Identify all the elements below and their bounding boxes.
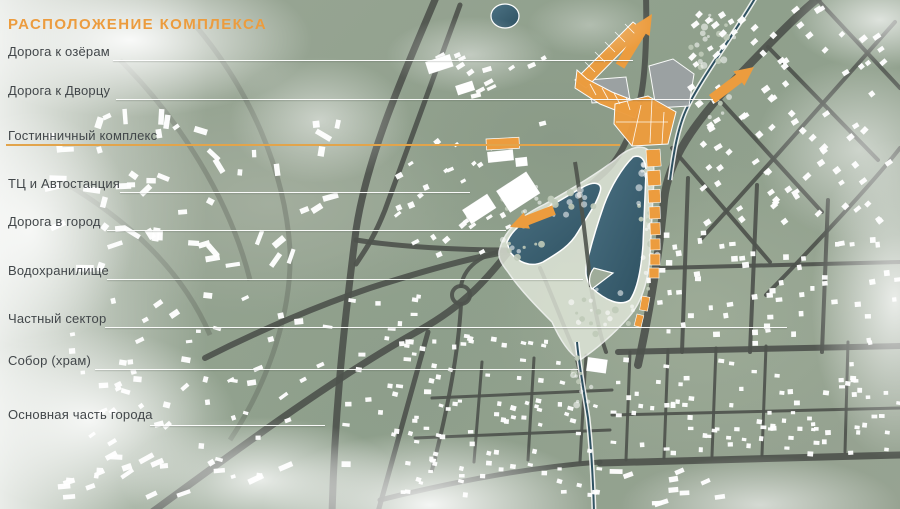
leader-line-1 xyxy=(116,99,713,100)
leader-line-4 xyxy=(107,230,506,231)
legend-label-8: Основная часть города xyxy=(8,408,153,422)
leader-line-8 xyxy=(150,425,325,426)
legend: Дорога к озёрамДорога к ДворцуГостинничн… xyxy=(0,0,900,509)
legend-label-0: Дорога к озёрам xyxy=(8,45,110,59)
legend-label-2: Гостинничный комплекс xyxy=(8,129,157,143)
legend-label-6: Частный сектор xyxy=(8,312,106,326)
legend-label-7: Собор (храм) xyxy=(8,354,91,368)
slide-location-of-complex: РАСПОЛОЖЕНИЕ КОМПЛЕКСА Дорога к озёрамДо… xyxy=(0,0,900,509)
leader-line-2 xyxy=(6,144,620,146)
legend-label-1: Дорога к Дворцу xyxy=(8,84,110,98)
legend-label-3: ТЦ и Автостанция xyxy=(8,177,120,191)
leader-line-0 xyxy=(113,60,633,61)
leader-line-7 xyxy=(95,369,578,370)
legend-label-4: Дорога в город xyxy=(8,215,101,229)
legend-label-5: Водохранилище xyxy=(8,264,109,278)
leader-line-3 xyxy=(120,192,470,193)
leader-line-5 xyxy=(107,279,583,280)
leader-line-6 xyxy=(105,327,787,328)
